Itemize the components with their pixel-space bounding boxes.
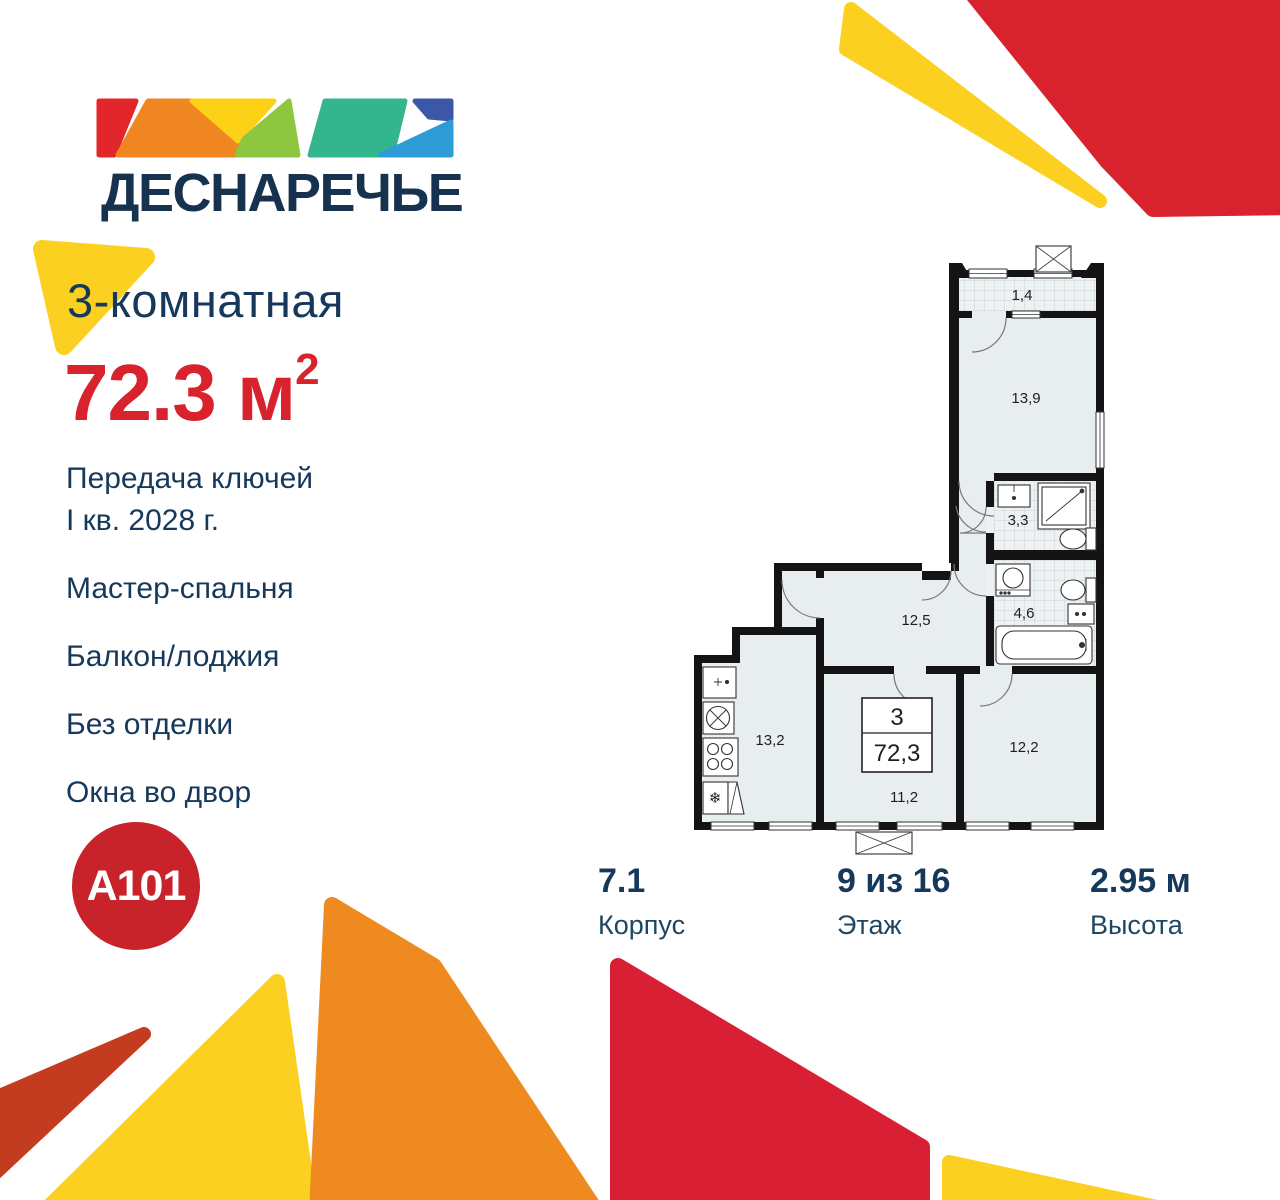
stat-height-label: Высота: [1090, 910, 1191, 941]
apartment-type-title: 3-комнатная: [67, 273, 344, 328]
stat-height: 2.95 м Высота: [1090, 862, 1191, 941]
stat-height-value: 2.95 м: [1090, 862, 1191, 901]
feature-master-bedroom: Мастер-спальня: [66, 568, 486, 610]
info-box-area: 72,3: [874, 740, 921, 767]
area-superscript: 2: [295, 345, 318, 394]
bath-small-label: 3,3: [1008, 512, 1029, 529]
feature-courtyard-windows: Окна во двор: [66, 772, 486, 814]
stats-row: 7.1 Корпус 9 из 16 Этаж 2.95 м Высота: [0, 862, 1280, 962]
stat-floor: 9 из 16 Этаж: [837, 862, 950, 941]
floor-plan: ❄: [694, 230, 1106, 855]
area-unit: м: [237, 348, 295, 437]
feature-keys-handover: Передача ключей I кв. 2028 г.: [66, 458, 486, 542]
stat-building-label: Корпус: [598, 910, 685, 941]
balcony-label: 1,4: [1012, 287, 1033, 304]
svg-text:❄: ❄: [709, 790, 722, 807]
bedroom-label: 13,9: [1011, 390, 1040, 407]
brand-logo-mosaic: [95, 88, 455, 163]
feature-list: Передача ключей I кв. 2028 г. Мастер-спа…: [66, 458, 486, 840]
listing-card: { "brand": { "name": "ДЕСНАРЕЧЬЕ", "deve…: [0, 0, 1280, 1200]
bath-large-label: 4,6: [1014, 605, 1035, 622]
plan-info-box: 3 72,3: [862, 698, 932, 772]
area-value: 72.3: [64, 348, 216, 437]
brand-name: ДЕСНАРЕЧЬЕ: [101, 162, 462, 224]
info-box-rooms: 3: [890, 704, 903, 731]
room-center-label: 11,2: [890, 789, 918, 806]
stat-building-value: 7.1: [598, 862, 685, 901]
mosaic-teal-tile: [310, 101, 405, 155]
stat-floor-value: 9 из 16: [837, 862, 950, 901]
hall-label: 12,5: [901, 612, 930, 629]
stat-building: 7.1 Корпус: [598, 862, 685, 941]
room-right-label: 12,2: [1009, 739, 1038, 756]
stat-floor-label: Этаж: [837, 910, 950, 941]
apartment-area: 72.3 м2: [64, 347, 319, 439]
mosaic-navy-tile: [415, 101, 451, 119]
feature-no-finishing: Без отделки: [66, 704, 486, 746]
kitchen-label: 13,2: [755, 732, 784, 749]
feature-balcony: Балкон/лоджия: [66, 636, 486, 678]
